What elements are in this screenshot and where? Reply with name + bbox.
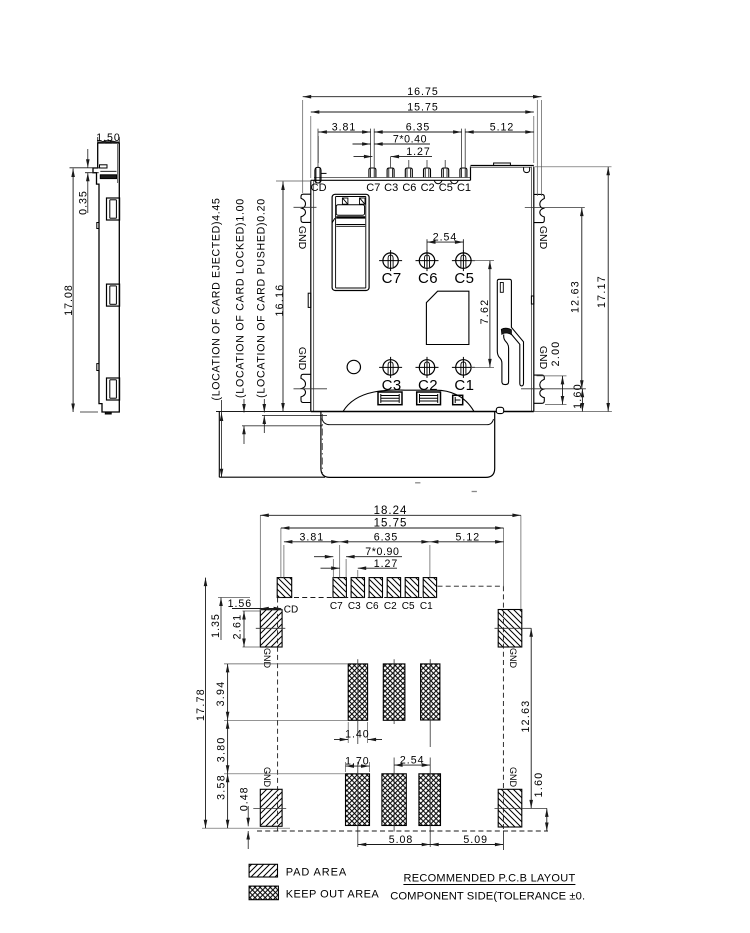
- svg-text:COMPONENT SIDE(TOLERANCE ±0.: COMPONENT SIDE(TOLERANCE ±0.: [390, 891, 585, 903]
- svg-text:C2: C2: [421, 182, 435, 194]
- svg-text:C3: C3: [382, 377, 402, 394]
- svg-text:5.09: 5.09: [463, 834, 488, 846]
- svg-text:RECOMMENDED P.C.B LAYOUT: RECOMMENDED P.C.B LAYOUT: [404, 873, 576, 885]
- svg-text:C6: C6: [418, 270, 438, 287]
- svg-text:GND: GND: [262, 648, 272, 669]
- svg-text:1.27: 1.27: [406, 146, 431, 158]
- svg-text:17.08: 17.08: [63, 284, 75, 316]
- svg-text:5.08: 5.08: [389, 834, 414, 846]
- svg-text:C2: C2: [384, 601, 397, 612]
- svg-text:(LOCATION OF CARD PUSHED)0.20: (LOCATION OF CARD PUSHED)0.20: [256, 198, 268, 398]
- svg-text:C7: C7: [330, 601, 343, 612]
- svg-text:6.35: 6.35: [374, 531, 399, 543]
- svg-text:C5: C5: [454, 270, 474, 287]
- svg-text:C3: C3: [384, 182, 398, 194]
- svg-text:5.12: 5.12: [455, 531, 480, 543]
- svg-text:C5: C5: [439, 182, 453, 194]
- svg-text:3.94: 3.94: [215, 681, 227, 707]
- svg-text:C1: C1: [420, 601, 433, 612]
- svg-text:3.81: 3.81: [299, 531, 324, 543]
- svg-text:7.62: 7.62: [479, 299, 491, 325]
- svg-text:1.60: 1.60: [533, 771, 545, 797]
- svg-text:GND: GND: [262, 767, 272, 788]
- svg-text:7*0.40: 7*0.40: [393, 134, 427, 146]
- svg-text:GND: GND: [537, 346, 549, 370]
- svg-text:C1: C1: [457, 182, 471, 194]
- svg-text:1.56: 1.56: [228, 598, 253, 610]
- svg-text:PAD AREA: PAD AREA: [286, 866, 347, 878]
- svg-text:C1: C1: [454, 377, 474, 394]
- svg-text:5.12: 5.12: [490, 122, 515, 134]
- svg-text:KEEP OUT AREA: KEEP OUT AREA: [286, 889, 380, 901]
- svg-text:0.48: 0.48: [239, 786, 251, 811]
- svg-text:6.35: 6.35: [406, 122, 431, 134]
- svg-text:1.50: 1.50: [96, 132, 121, 144]
- svg-text:C7: C7: [382, 270, 402, 287]
- svg-text:16.16: 16.16: [274, 283, 286, 316]
- svg-text:1.70: 1.70: [345, 755, 370, 767]
- svg-text:C6: C6: [402, 182, 416, 194]
- svg-text:17.17: 17.17: [596, 275, 608, 308]
- svg-text:2.54: 2.54: [433, 232, 458, 244]
- svg-text:0.35: 0.35: [77, 190, 89, 215]
- svg-text:(LOCATION OF CARD EJECTED)4.45: (LOCATION OF CARD EJECTED)4.45: [210, 198, 222, 401]
- svg-text:GND: GND: [508, 648, 518, 669]
- svg-text:7*0.90: 7*0.90: [365, 546, 399, 558]
- svg-text:3.80: 3.80: [216, 736, 228, 762]
- svg-text:17.78: 17.78: [195, 688, 207, 721]
- svg-text:C7: C7: [366, 182, 380, 194]
- svg-text:12.63: 12.63: [520, 699, 532, 732]
- svg-text:1.60: 1.60: [572, 383, 584, 409]
- svg-text:1.40: 1.40: [345, 729, 370, 741]
- svg-text:CD: CD: [284, 605, 298, 616]
- svg-text:2.00: 2.00: [550, 340, 562, 366]
- svg-text:16.75: 16.75: [407, 86, 439, 98]
- svg-text:1.35: 1.35: [210, 613, 222, 638]
- svg-text:2.61: 2.61: [232, 614, 244, 640]
- svg-text:CD: CD: [311, 182, 327, 194]
- svg-text:GND: GND: [537, 226, 549, 250]
- svg-text:3.81: 3.81: [332, 122, 357, 134]
- svg-text:1.27: 1.27: [374, 558, 399, 570]
- svg-text:C3: C3: [348, 601, 361, 612]
- svg-text:C6: C6: [366, 601, 379, 612]
- svg-text:15.75: 15.75: [374, 517, 408, 529]
- svg-text:C5: C5: [402, 601, 415, 612]
- svg-text:18.24: 18.24: [374, 505, 408, 517]
- svg-text:GND: GND: [508, 767, 518, 788]
- svg-text:GND: GND: [296, 226, 308, 250]
- svg-text:12.63: 12.63: [570, 280, 582, 313]
- svg-text:15.75: 15.75: [407, 102, 439, 114]
- svg-text:C2: C2: [418, 377, 438, 394]
- svg-text:2.54: 2.54: [400, 755, 425, 767]
- svg-text:3.58: 3.58: [216, 774, 228, 800]
- svg-text:(LOCATION OF CARD LOCKED)1.00: (LOCATION OF CARD LOCKED)1.00: [235, 198, 247, 398]
- svg-text:GND: GND: [296, 347, 308, 371]
